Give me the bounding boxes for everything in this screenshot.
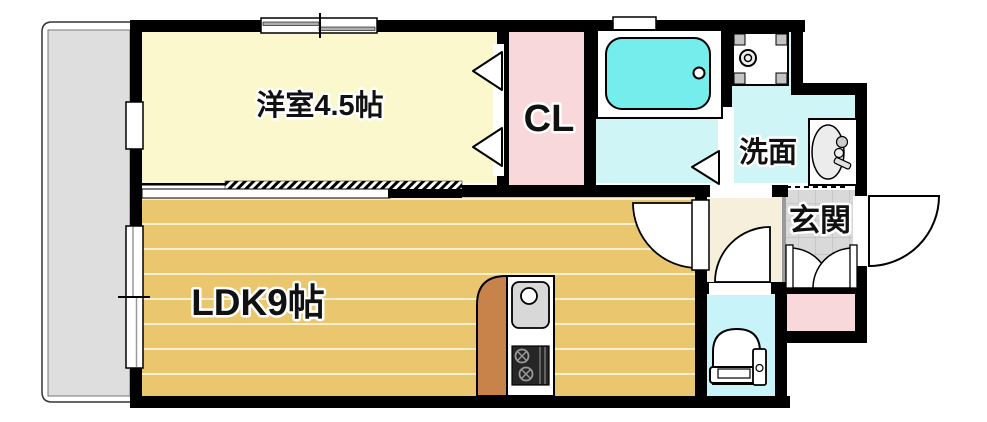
sliding-partition (142, 181, 462, 198)
ldk-door-leaf (692, 200, 709, 270)
faucet-icon (837, 137, 848, 148)
opening-toilet-door (709, 283, 771, 295)
bathtub-drain-icon (694, 68, 705, 79)
label-western-room: 洋室4.5帖 (256, 88, 383, 122)
wall-washroom-entrance-stub (772, 185, 788, 197)
kitchen-unit (477, 276, 554, 396)
balcony-floor (48, 30, 130, 396)
shoe-cabinet-door-left-leaf (786, 245, 793, 288)
partition-panel-black (388, 189, 462, 198)
window-bathroom-small (613, 17, 656, 31)
entrance-door-swing (869, 196, 939, 266)
kitchen-counter (477, 276, 509, 396)
opening-washroom-hallway (710, 184, 772, 198)
label-washroom: 洗面 (739, 136, 797, 169)
vanity-sink (809, 119, 857, 185)
faucet-icon (835, 149, 844, 158)
kitchen-faucet-icon (521, 288, 537, 304)
shoe-closet-floor (787, 294, 855, 331)
toilet-seat (718, 369, 750, 378)
toilet (710, 329, 766, 385)
label-ldk: LDK9帖 (191, 282, 325, 323)
drain-icon (740, 50, 756, 66)
shoe-cabinet-door-right-leaf (850, 245, 857, 288)
floor-plan-canvas: 洋室4.5帖 CL 洗面 玄関 LDK9帖 (0, 0, 987, 422)
partition-track-line (142, 183, 225, 186)
window-western-room-balcony (126, 102, 143, 149)
floor-plan: 洋室4.5帖 CL 洗面 玄関 LDK9帖 (0, 0, 987, 422)
wall-bottom (130, 396, 790, 408)
bathtub-unit (597, 30, 722, 118)
wall-shoe-closet-bottom (775, 331, 867, 343)
toilet-control-icon (756, 365, 763, 372)
gas-stove (512, 346, 549, 385)
washing-machine-pan (733, 33, 788, 85)
label-entrance: 玄関 (789, 203, 851, 238)
wall-mid-horizontal (460, 185, 735, 197)
wall-toilet-right (775, 282, 787, 408)
label-closet: CL (524, 98, 575, 140)
partition-panel-white (142, 189, 390, 198)
wall-closet-bath (584, 20, 596, 197)
balcony (42, 22, 137, 402)
